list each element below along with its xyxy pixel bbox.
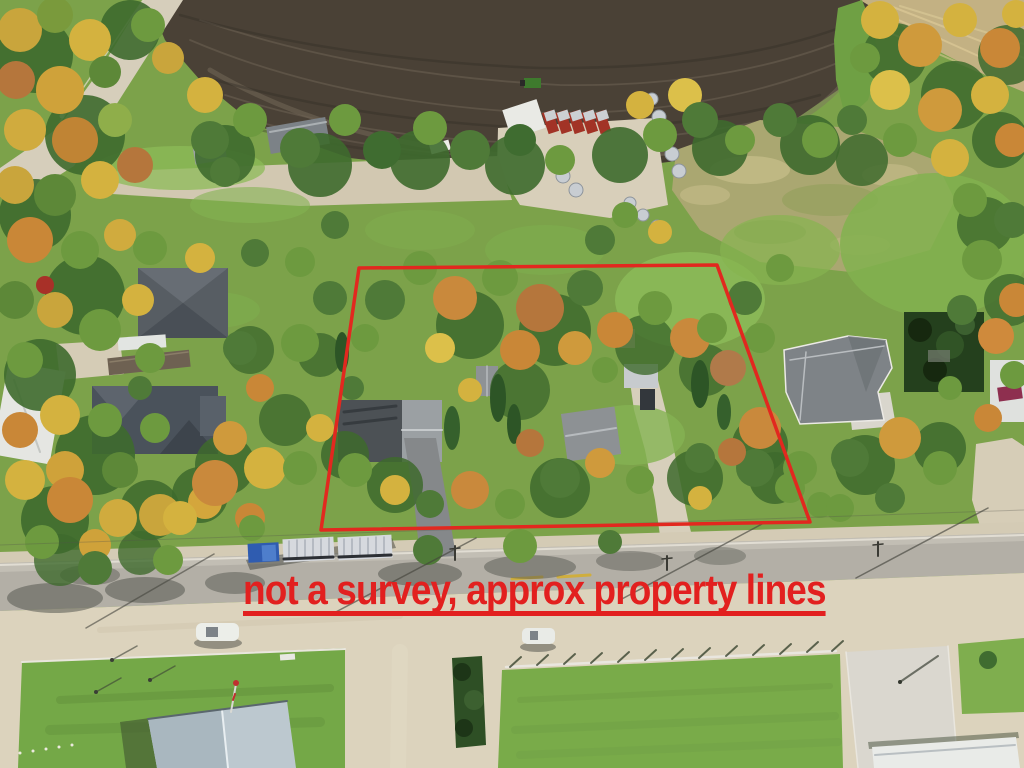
annotation-caption-text: not a survey, approx property lines	[243, 571, 826, 616]
aerial-photo-canvas	[0, 0, 1024, 768]
south-grounds	[18, 638, 1024, 768]
aerial-property-photo: not a survey, approx property lines	[0, 0, 1024, 768]
annotation-caption: not a survey, approx property lines	[243, 571, 826, 616]
